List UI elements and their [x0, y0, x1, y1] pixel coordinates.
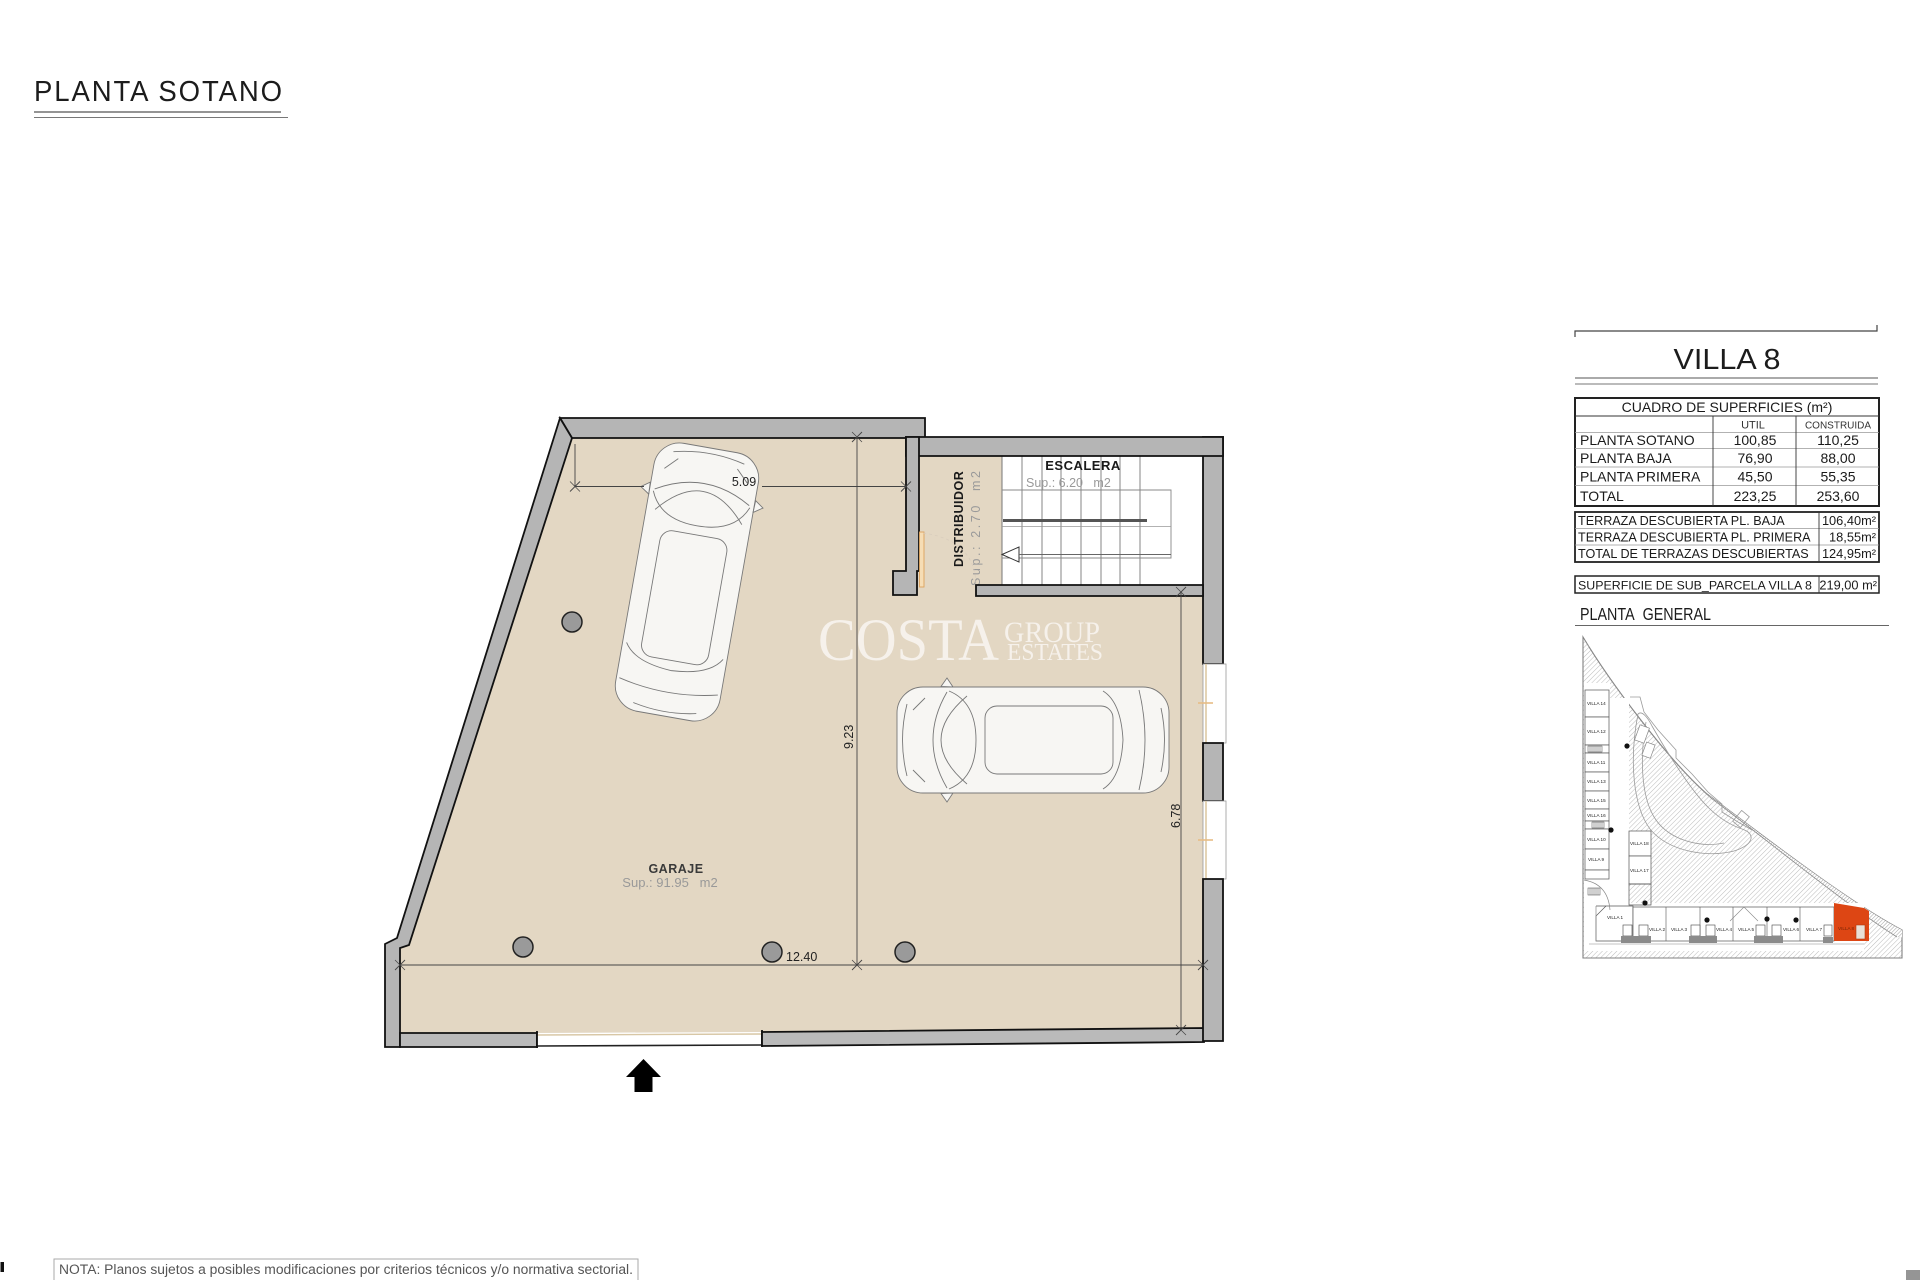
svg-text:SUPERFICIE DE SUB_PARCELA VILL: SUPERFICIE DE SUB_PARCELA VILLA 8: [1578, 579, 1812, 593]
svg-text:TOTAL: TOTAL: [1580, 488, 1624, 504]
svg-text:100,85: 100,85: [1734, 432, 1777, 448]
svg-text:76,90: 76,90: [1737, 450, 1772, 466]
svg-text:DISTRIBUIDOR: DISTRIBUIDOR: [952, 471, 966, 567]
svg-text:PLANTA PRIMERA: PLANTA PRIMERA: [1580, 469, 1701, 485]
svg-text:VILLA 17: VILLA 17: [1630, 868, 1649, 873]
svg-text:ESTATES: ESTATES: [1007, 640, 1103, 666]
svg-text:NOTA: Planos sujetos a posible: NOTA: Planos sujetos a posibles modifica…: [59, 1262, 633, 1277]
svg-text:VILLA 5: VILLA 5: [1738, 927, 1755, 932]
svg-text:CONSTRUIDA: CONSTRUIDA: [1805, 421, 1871, 432]
svg-text:VILLA 14: VILLA 14: [1587, 701, 1606, 706]
svg-text:PLANTA GENERAL: PLANTA GENERAL: [1580, 604, 1711, 624]
svg-text:VILLA 15: VILLA 15: [1587, 798, 1606, 803]
svg-text:UTIL: UTIL: [1741, 420, 1765, 432]
svg-text:COSTA: COSTA: [818, 607, 999, 673]
svg-text:253,60: 253,60: [1817, 488, 1860, 504]
svg-text:CUADRO DE SUPERFICIES (m²): CUADRO DE SUPERFICIES (m²): [1622, 399, 1833, 415]
svg-text:VILLA 8: VILLA 8: [1674, 344, 1781, 376]
svg-text:18,55m²: 18,55m²: [1829, 530, 1877, 545]
svg-text:219,00 m²: 219,00 m²: [1819, 578, 1877, 593]
svg-text:VILLA 10: VILLA 10: [1587, 837, 1606, 842]
svg-text:12.40: 12.40: [786, 950, 817, 964]
svg-text:GARAJE: GARAJE: [648, 862, 703, 876]
svg-text:VILLA 2: VILLA 2: [1649, 927, 1666, 932]
svg-text:VILLA 11: VILLA 11: [1587, 760, 1606, 765]
svg-text:88,00: 88,00: [1820, 450, 1855, 466]
svg-text:TERRAZA DESCUBIERTA PL. PRIMER: TERRAZA DESCUBIERTA PL. PRIMERA: [1578, 531, 1811, 545]
svg-text:45,50: 45,50: [1737, 469, 1772, 485]
svg-text:110,25: 110,25: [1817, 432, 1859, 448]
svg-text:9.23: 9.23: [842, 725, 856, 749]
svg-text:Sup.: 2.70 m2: Sup.: 2.70 m2: [969, 471, 983, 586]
svg-text:Sup.: 91.95 m2: Sup.: 91.95 m2: [622, 875, 717, 890]
svg-text:VILLA 16: VILLA 16: [1587, 813, 1606, 818]
svg-text:VILLA 7: VILLA 7: [1806, 927, 1823, 932]
svg-text:ESCALERA: ESCALERA: [1045, 458, 1121, 473]
svg-text:VILLA 8: VILLA 8: [1838, 926, 1855, 931]
svg-text:VILLA 13: VILLA 13: [1587, 779, 1606, 784]
svg-text:PLANTA SOTANO: PLANTA SOTANO: [34, 76, 284, 108]
svg-text:124,95m²: 124,95m²: [1822, 546, 1877, 561]
svg-text:VILLA 6: VILLA 6: [1783, 927, 1800, 932]
svg-text:55,35: 55,35: [1820, 469, 1855, 485]
svg-text:106,40m²: 106,40m²: [1822, 513, 1877, 528]
svg-text:PLANTA SOTANO: PLANTA SOTANO: [1580, 432, 1695, 448]
svg-text:PLANTA BAJA: PLANTA BAJA: [1580, 450, 1672, 466]
svg-text:VILLA 1: VILLA 1: [1607, 915, 1624, 920]
svg-text:VILLA 9: VILLA 9: [1588, 857, 1605, 862]
svg-text:Sup.: 6.20 m2: Sup.: 6.20 m2: [1026, 476, 1111, 490]
svg-text:TOTAL DE TERRAZAS DESCUBIERTAS: TOTAL DE TERRAZAS DESCUBIERTAS: [1578, 547, 1809, 561]
svg-text:VILLA 18: VILLA 18: [1630, 841, 1649, 846]
svg-text:VILLA 12: VILLA 12: [1587, 729, 1606, 734]
svg-text:223,25: 223,25: [1734, 488, 1777, 504]
svg-text:VILLA 4: VILLA 4: [1716, 927, 1733, 932]
svg-text:5.09: 5.09: [732, 475, 756, 489]
svg-text:6.78: 6.78: [1169, 804, 1183, 828]
svg-text:VILLA 3: VILLA 3: [1671, 927, 1688, 932]
svg-text:TERRAZA DESCUBIERTA PL. BAJA: TERRAZA DESCUBIERTA PL. BAJA: [1578, 514, 1785, 528]
